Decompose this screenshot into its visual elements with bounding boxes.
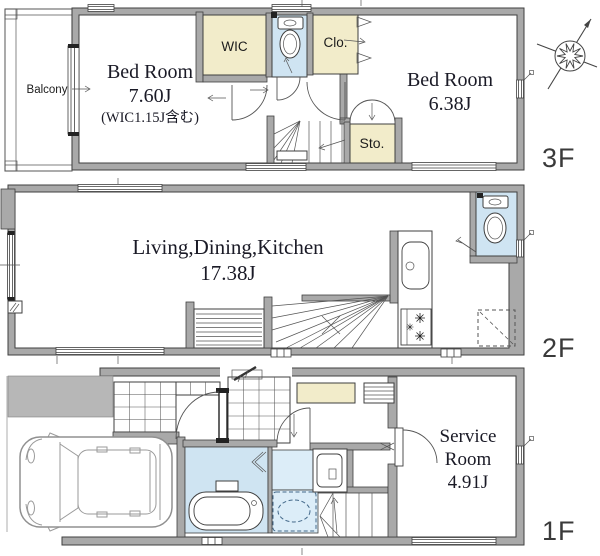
approach-area (8, 376, 113, 417)
balcony-label: Balcony (18, 84, 76, 97)
window-cap (68, 132, 79, 136)
north-arrow-icon (537, 19, 597, 89)
bedroom-3f-right-name: Bed Room (375, 69, 525, 91)
stairs-icon-2f (194, 296, 388, 348)
car-icon (20, 433, 172, 531)
service-room-name-line1: Service (408, 426, 528, 447)
window-cap (8, 297, 15, 301)
walk-in-closet-label: WIC (203, 39, 266, 54)
window-cap (8, 231, 15, 235)
window-handle-2f (524, 231, 534, 241)
washbasin-icon (313, 449, 347, 492)
closet-label: Clo. (313, 35, 358, 50)
bedroom-3f-left-size: 7.60J (75, 85, 225, 107)
ldk-name: Living,Dining,Kitchen (88, 236, 368, 260)
window-handle-3f (524, 71, 534, 81)
entrance-steps (364, 383, 394, 403)
window-cap (68, 44, 79, 48)
storage-label: Sto. (348, 136, 396, 152)
bedroom-3f-right-size: 6.38J (375, 93, 525, 115)
bedroom-3f-left-name: Bed Room (75, 61, 225, 83)
bath-counter (216, 481, 238, 491)
kitchen-counter (398, 231, 432, 348)
wall-jog-2f (1, 189, 15, 229)
stairs-icon-1f (320, 493, 372, 537)
floor-label-2f: 2F (542, 333, 576, 364)
floor-plan-image: Balcony Bed Room 7.60J (WIC1.15J含む) WIC … (0, 0, 600, 556)
bedroom-3f-left-note: (WIC1.15J含む) (60, 110, 240, 126)
washroom-lower (272, 490, 318, 533)
service-room-size: 4.91J (408, 472, 528, 493)
window-lock-box-2f (8, 301, 22, 313)
bathtub-icon (189, 492, 263, 530)
entrance-opening (220, 367, 292, 377)
service-room-name-line2: Room (408, 449, 528, 470)
floor-label-3f: 3F (542, 143, 576, 174)
stairs-icon-3f (274, 121, 345, 163)
floor-label-1f: 1F (542, 516, 576, 547)
shoe-cabinet (297, 383, 355, 403)
ldk-size: 17.38J (88, 262, 368, 286)
bath-divider-wall (268, 447, 272, 533)
